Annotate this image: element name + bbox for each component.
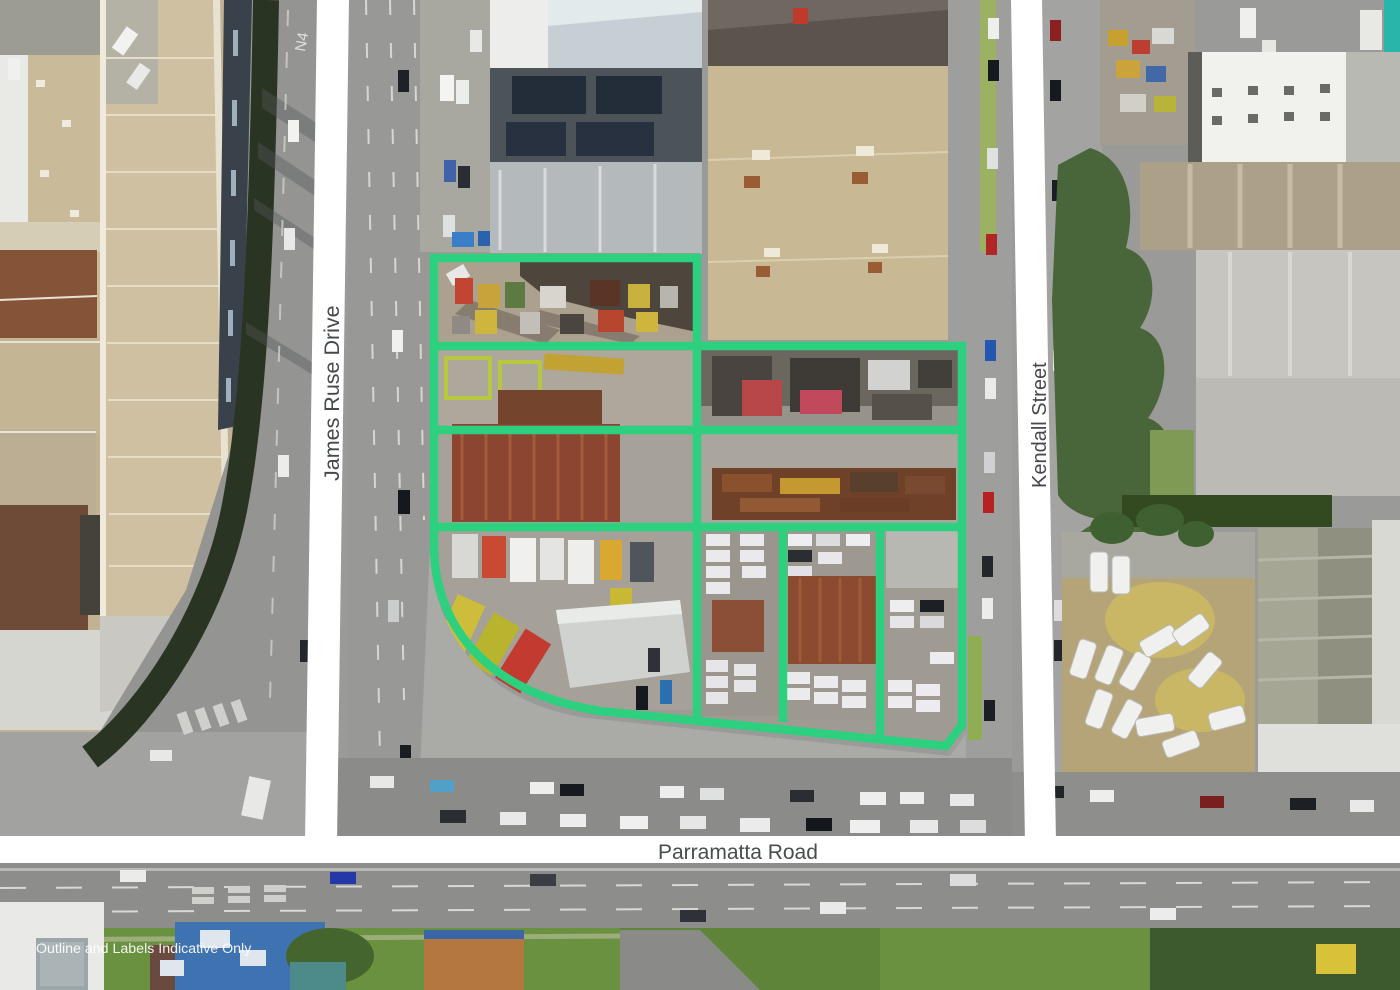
svg-text:Parramatta Road: Parramatta Road — [658, 841, 818, 864]
svg-text:Kendall Street: Kendall Street — [1029, 362, 1051, 488]
svg-text:James Ruse Drive: James Ruse Drive — [320, 305, 344, 481]
svg-text:N4: N4 — [292, 31, 312, 53]
svg-text:Outline and Labels Indicative: Outline and Labels Indicative Only — [36, 941, 252, 957]
